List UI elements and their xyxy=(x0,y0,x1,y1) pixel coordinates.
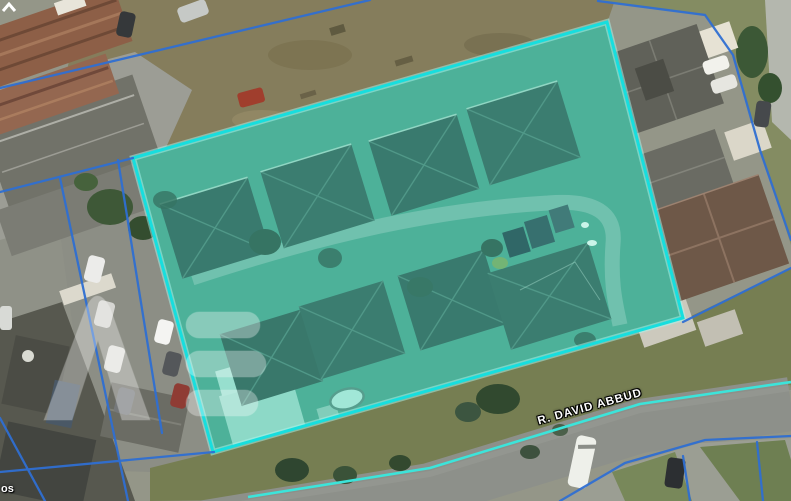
aerial-photo[interactable] xyxy=(0,0,791,501)
attribution-text: os xyxy=(1,483,14,495)
satellite-map-view: R. DAVID ABBUD os xyxy=(0,0,791,501)
chevron-up-icon xyxy=(0,0,18,14)
